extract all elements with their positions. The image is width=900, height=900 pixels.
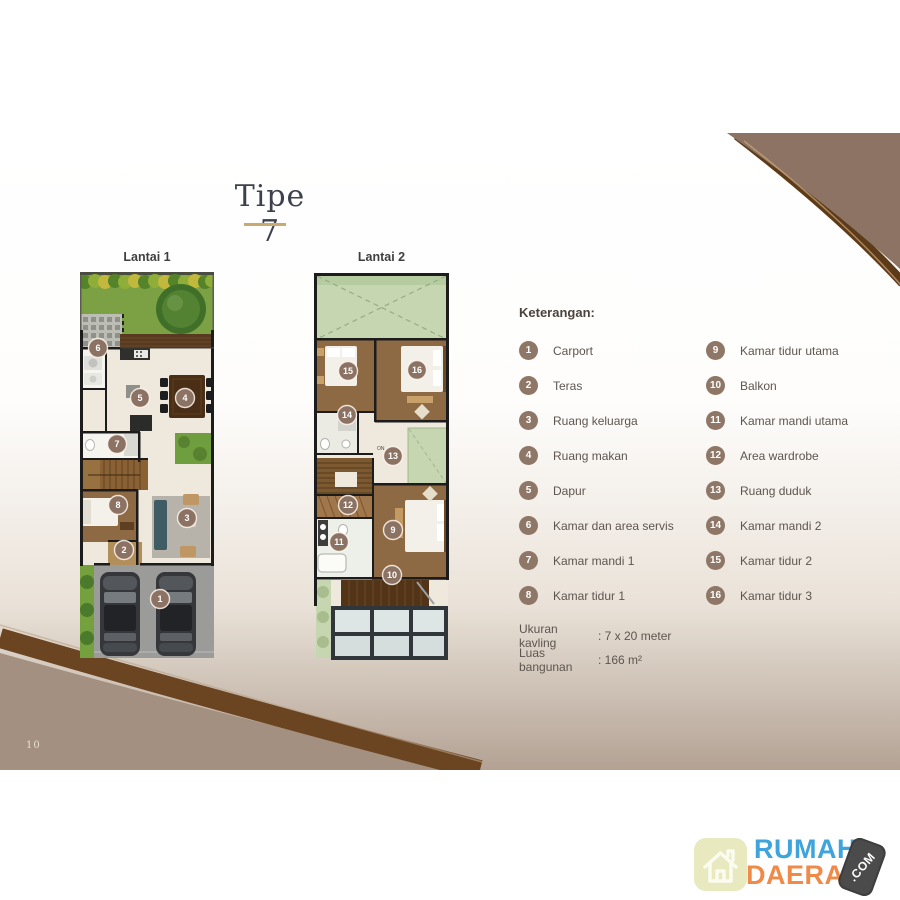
- legend-number-badge: 12: [706, 446, 725, 465]
- legend-number-badge: 16: [706, 586, 725, 605]
- legend-item: 15Kamar tidur 2: [706, 551, 886, 570]
- hedge-row: [80, 274, 214, 289]
- legend-item-label: Kamar dan area servis: [553, 519, 674, 533]
- legend-item: 16Kamar tidur 3: [706, 586, 886, 605]
- legend: Keterangan: 1Carport 2Teras 3Ruang kelua…: [519, 305, 889, 341]
- inner-courtyard: [175, 433, 212, 464]
- legend-number-badge: 8: [519, 586, 538, 605]
- legend-number-badge: 11: [706, 411, 725, 430]
- room-marker-number: 10: [387, 570, 397, 580]
- legend-item-label: Kamar tidur utama: [740, 344, 839, 358]
- room-marker-number: 14: [342, 410, 352, 420]
- legend-number-badge: 13: [706, 481, 725, 500]
- legend-item-label: Kamar mandi utama: [740, 414, 848, 428]
- room-marker-number: 12: [343, 500, 353, 510]
- side-garden-2: [316, 580, 331, 658]
- room-marker-number: 3: [184, 513, 189, 523]
- legend-number-badge: 5: [519, 481, 538, 500]
- specs: Ukuran kavling : 7 x 20 meter Luas bangu…: [519, 624, 671, 672]
- legend-item: 8Kamar tidur 1: [519, 586, 699, 605]
- upper-courtyard: [408, 428, 447, 484]
- room-marker-number: 13: [388, 451, 398, 461]
- spec-value: : 7 x 20 meter: [598, 629, 671, 643]
- legend-number-badge: 2: [519, 376, 538, 395]
- room-marker-number: 16: [412, 365, 422, 375]
- side-garden: [80, 565, 94, 658]
- legend-number-badge: 4: [519, 446, 538, 465]
- title-underline: [244, 223, 286, 226]
- legend-item: 11Kamar mandi utama: [706, 411, 886, 430]
- legend-item: 7Kamar mandi 1: [519, 551, 699, 570]
- stairs-on-label: ON: [377, 446, 385, 452]
- legend-item-label: Kamar mandi 1: [553, 554, 634, 568]
- brochure-page: 10 Tipe 7 Lantai 1 Lantai 2: [0, 0, 900, 900]
- room-marker-number: 7: [114, 439, 119, 449]
- stairs-1: [82, 460, 148, 490]
- room-marker-number: 2: [121, 545, 126, 555]
- legend-item: 3Ruang keluarga: [519, 411, 699, 430]
- legend-number-badge: 15: [706, 551, 725, 570]
- house-icon: [694, 838, 747, 891]
- legend-item-label: Ruang duduk: [740, 484, 811, 498]
- roof-garden: [316, 275, 447, 340]
- legend-item-label: Ruang makan: [553, 449, 628, 463]
- legend-item-label: Kamar tidur 3: [740, 589, 812, 603]
- legend-number-badge: 1: [519, 341, 538, 360]
- spec-value: : 166 m²: [598, 653, 642, 667]
- spec-row: Luas bangunan : 166 m²: [519, 648, 671, 672]
- legend-item: 6Kamar dan area servis: [519, 516, 699, 535]
- floorplan-label-2: Lantai 2: [313, 250, 450, 264]
- room-marker-number: 8: [115, 500, 120, 510]
- page-title: Tipe 7: [222, 179, 318, 249]
- carport: [94, 565, 214, 658]
- legend-number-badge: 3: [519, 411, 538, 430]
- legend-number-badge: 14: [706, 516, 725, 535]
- decor-top-right: [727, 133, 900, 291]
- room-marker-number: 1: [157, 594, 162, 604]
- legend-item: 2Teras: [519, 376, 699, 395]
- legend-item: 10Balkon: [706, 376, 886, 395]
- room-marker-number: 4: [182, 393, 187, 403]
- legend-item-label: Kamar tidur 1: [553, 589, 625, 603]
- legend-heading: Keterangan:: [519, 305, 889, 320]
- wood-deck: [120, 334, 214, 348]
- legend-item-label: Kamar mandi 2: [740, 519, 821, 533]
- legend-item-label: Dapur: [553, 484, 586, 498]
- rumahdaerah-logo: RUMAH DAERAH .COM: [688, 832, 893, 898]
- legend-item: 13Ruang duduk: [706, 481, 886, 500]
- legend-item: 9Kamar tidur utama: [706, 341, 886, 360]
- room-marker-number: 9: [390, 525, 395, 535]
- logo-com-text: .COM: [846, 850, 878, 884]
- car-left: [100, 572, 140, 656]
- legend-number-badge: 6: [519, 516, 538, 535]
- spec-row: Ukuran kavling : 7 x 20 meter: [519, 624, 671, 648]
- legend-item-label: Carport: [553, 344, 593, 358]
- legend-item-label: Kamar tidur 2: [740, 554, 812, 568]
- garden-tree: [156, 284, 206, 334]
- legend-item-label: Ruang keluarga: [553, 414, 638, 428]
- legend-number-badge: 7: [519, 551, 538, 570]
- legend-item-label: Balkon: [740, 379, 777, 393]
- room-marker-number: 5: [137, 393, 142, 403]
- room-marker-number: 6: [95, 343, 100, 353]
- legend-number-badge: 9: [706, 341, 725, 360]
- legend-item: 4Ruang makan: [519, 446, 699, 465]
- legend-column-left: 1Carport 2Teras 3Ruang keluarga 4Ruang m…: [519, 341, 699, 621]
- legend-number-badge: 10: [706, 376, 725, 395]
- bedroom-1: [80, 490, 138, 542]
- glass-canopy: [331, 606, 448, 660]
- legend-item-label: Area wardrobe: [740, 449, 819, 463]
- floorplan-lantai-1: 65478321: [80, 272, 214, 662]
- floorplan-label-1: Lantai 1: [80, 250, 214, 264]
- room-marker-number: 11: [334, 537, 344, 547]
- spec-label: Luas bangunan: [519, 646, 598, 674]
- floorplan-lantai-2: ON: [313, 272, 450, 662]
- slide-area: 10 Tipe 7 Lantai 1 Lantai 2: [0, 133, 900, 770]
- bedroom-3: [375, 340, 447, 422]
- page-number: 10: [26, 740, 41, 751]
- legend-item: 5Dapur: [519, 481, 699, 500]
- room-marker-number: 15: [343, 366, 353, 376]
- car-right: [156, 572, 196, 656]
- legend-column-right: 9Kamar tidur utama 10Balkon 11Kamar mand…: [706, 341, 886, 621]
- legend-item: 12Area wardrobe: [706, 446, 886, 465]
- legend-item: 14Kamar mandi 2: [706, 516, 886, 535]
- legend-item-label: Teras: [553, 379, 582, 393]
- legend-item: 1Carport: [519, 341, 699, 360]
